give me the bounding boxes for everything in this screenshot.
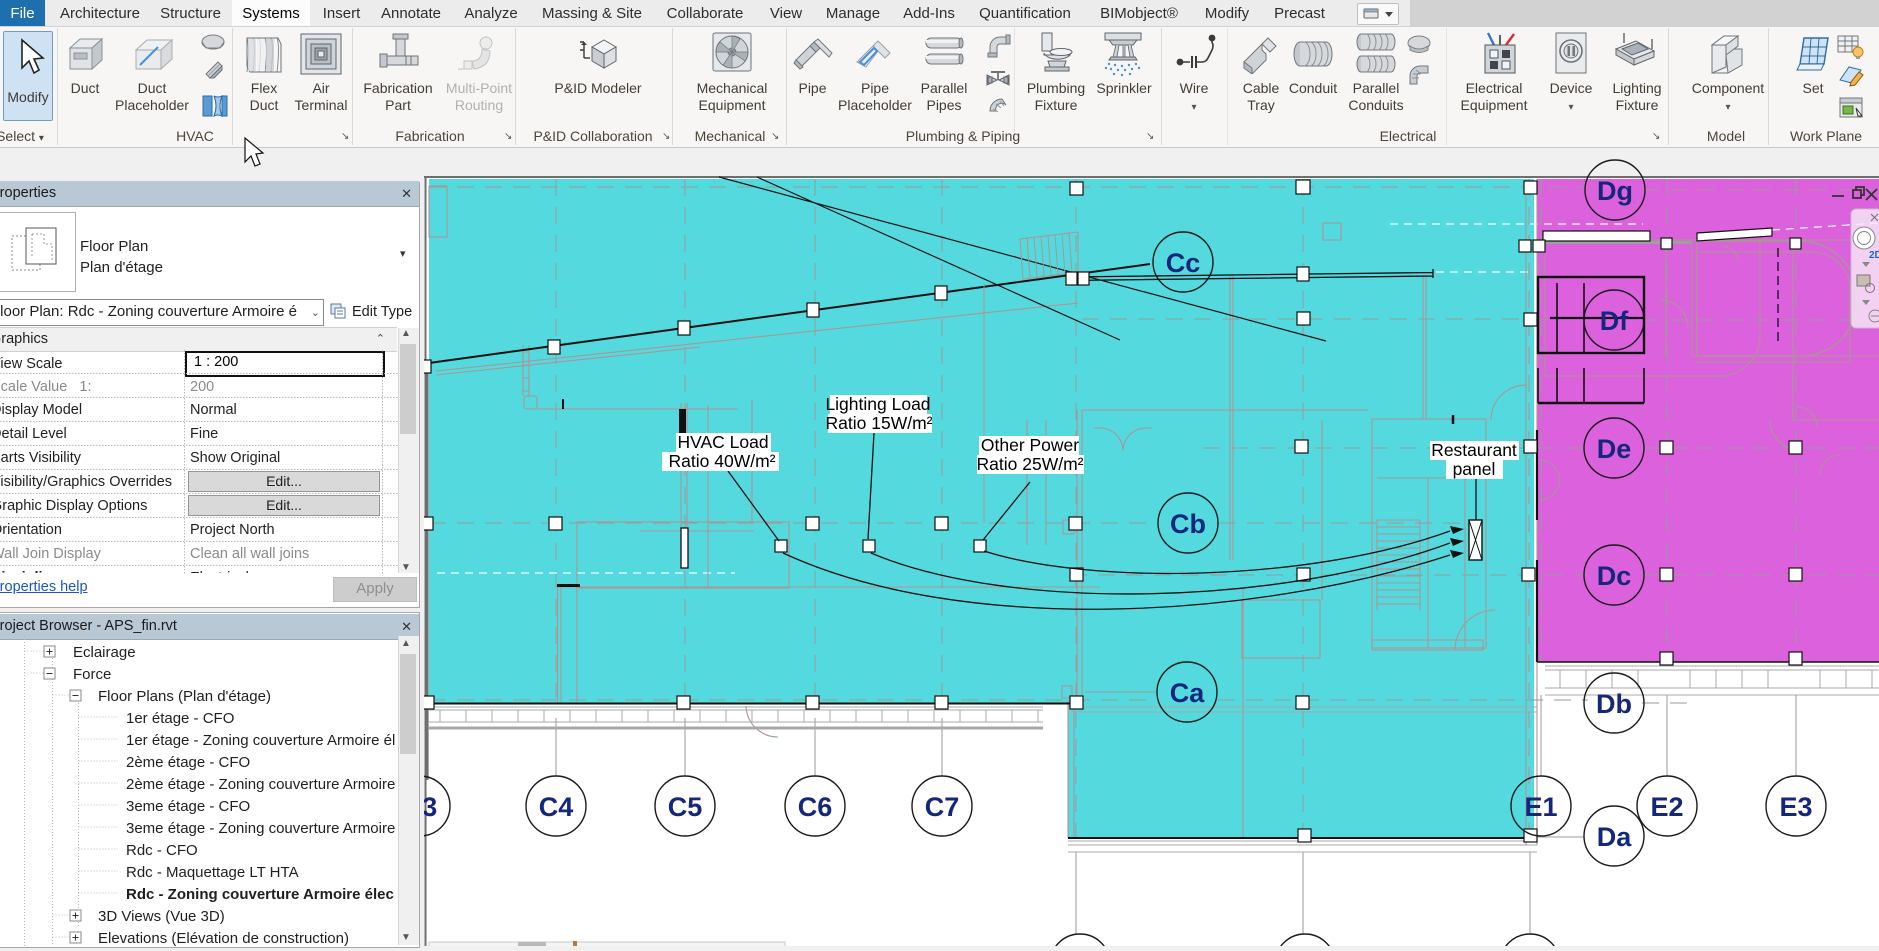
svg-text:C5: C5 [668,792,703,822]
svg-text:Cc: Cc [1166,248,1201,278]
svg-text:Ratio 15W/m²: Ratio 15W/m² [826,413,933,433]
svg-text:Df: Df [1600,306,1629,336]
svg-text:Db: Db [1596,689,1632,719]
svg-text:C6: C6 [798,792,833,822]
svg-text:Dg: Dg [1597,176,1633,206]
svg-text:2D: 2D [1869,250,1879,261]
svg-text:E3: E3 [1779,792,1812,822]
svg-text:Ca: Ca [1170,678,1205,708]
svg-text:E2: E2 [1650,792,1683,822]
svg-text:Dc: Dc [1597,561,1632,591]
svg-text:E1: E1 [1524,792,1557,822]
svg-text:HVAC Load: HVAC Load [677,432,768,452]
svg-text:C3: C3 [424,792,437,822]
svg-text:Ratio 25W/m²: Ratio 25W/m² [977,454,1084,474]
svg-text:Restaurant: Restaurant [1431,440,1517,460]
svg-text:C4: C4 [539,792,574,822]
svg-text:Lighting Load: Lighting Load [825,394,930,414]
svg-text:Other Power: Other Power [981,435,1079,455]
svg-text:Da: Da [1597,822,1632,852]
svg-text:De: De [1597,434,1632,464]
svg-text:panel: panel [1453,459,1496,479]
svg-text:Ratio 40W/m²: Ratio 40W/m² [669,451,776,471]
svg-text:C7: C7 [925,792,960,822]
svg-text:Cb: Cb [1170,509,1206,539]
